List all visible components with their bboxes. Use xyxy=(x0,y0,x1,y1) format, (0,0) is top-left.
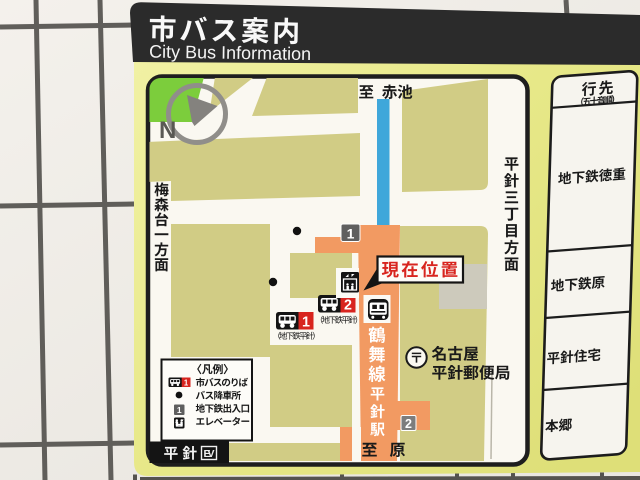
svg-text:N: N xyxy=(159,117,176,144)
svg-text:2: 2 xyxy=(405,417,412,431)
svg-text:EV: EV xyxy=(204,448,215,460)
svg-text:1: 1 xyxy=(347,226,355,242)
svg-text:1: 1 xyxy=(177,405,182,415)
svg-text:1: 1 xyxy=(302,314,310,330)
svg-text:2: 2 xyxy=(344,297,352,313)
svg-text:City Bus Information: City Bus Information xyxy=(149,42,311,65)
svg-text:1: 1 xyxy=(184,378,189,387)
